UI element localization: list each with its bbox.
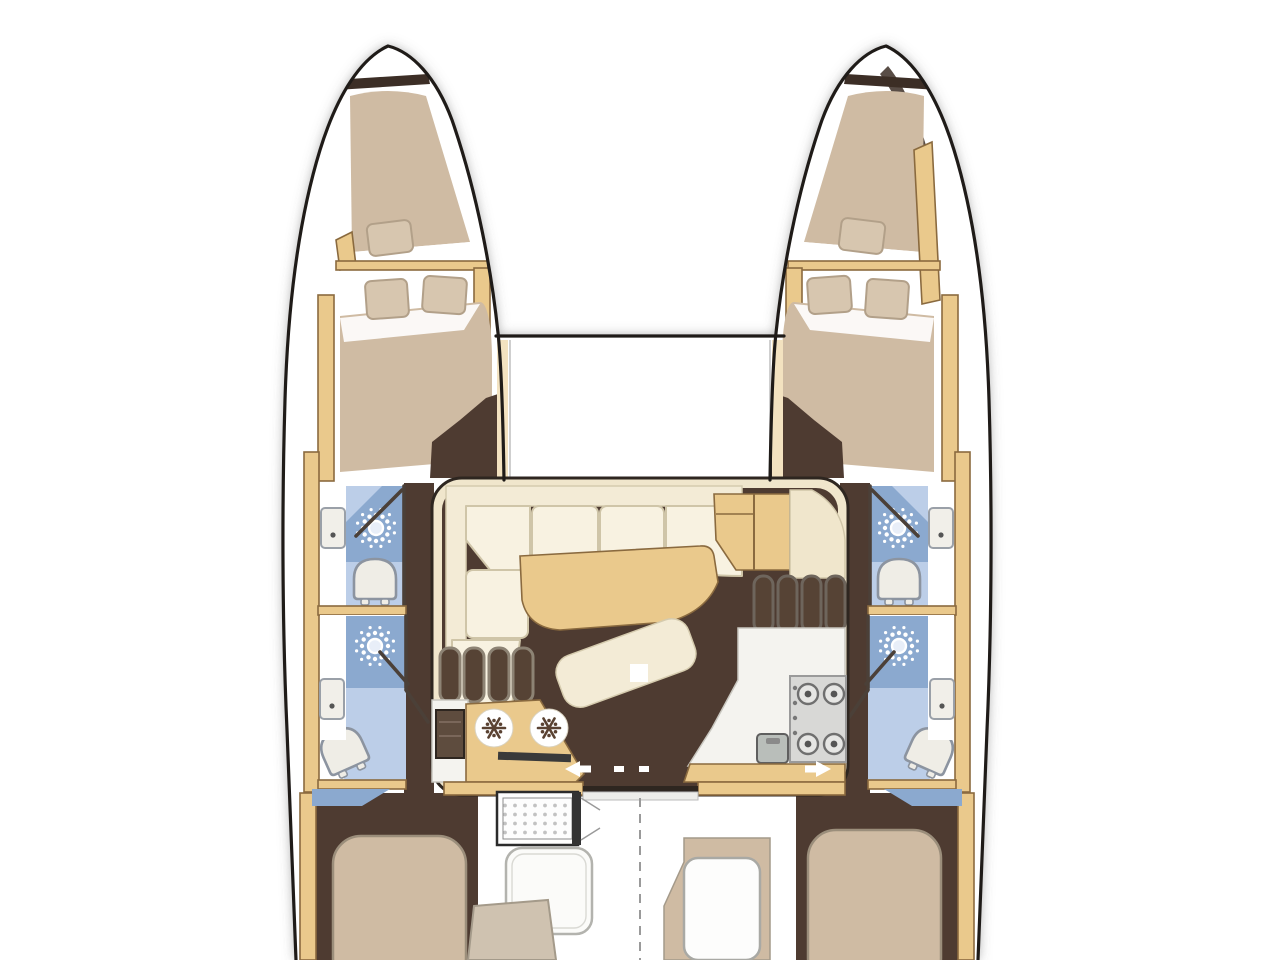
right-aft-bulkhead [868, 780, 956, 789]
nav-seat [714, 490, 845, 578]
sink-icon [930, 679, 954, 719]
right-forepeak-bulkhead [788, 261, 940, 270]
floor-plan-canvas [0, 0, 1280, 960]
right-forward-pillow-1 [865, 279, 910, 320]
left-heads-divider [318, 606, 406, 615]
right-side-wood-strip [955, 452, 970, 792]
burner-icon [798, 684, 818, 704]
table-folding-leaf [572, 792, 581, 845]
cockpit-seat-cushion [468, 900, 556, 960]
left-cabin-wood-outer [318, 295, 334, 481]
left-side-wood-strip [304, 452, 319, 792]
table-leg [630, 664, 648, 682]
sliding-door-track [583, 786, 698, 792]
sofa-cushion [466, 570, 528, 638]
arrow-dash [614, 766, 624, 772]
left-forepeak-pillow [366, 219, 414, 256]
left-aft-bulkhead [318, 780, 406, 789]
sink-icon [320, 679, 344, 719]
sink-icon [321, 508, 345, 548]
salon [432, 478, 848, 800]
right-forepeak-pillow [838, 217, 886, 254]
left-forepeak-bulkhead [336, 261, 488, 270]
left-aft-island-berth [333, 836, 466, 960]
left-forward-pillow-2 [422, 276, 467, 315]
burner-icon [824, 734, 844, 754]
burner-icon [798, 734, 818, 754]
cabinet-front [436, 710, 464, 758]
right-aft-wood-strip [958, 793, 974, 960]
door-sill-wood-right [698, 782, 845, 795]
aft-seat-white-top [684, 858, 760, 960]
catamaran-floor-plan [0, 0, 1280, 960]
left-corridor-floor [404, 483, 434, 795]
right-heads-divider [868, 606, 956, 615]
toilet-icon [354, 559, 396, 605]
left-bathroom-forward [320, 483, 404, 608]
left-forward-pillow-1 [365, 279, 410, 320]
toilet-icon [878, 559, 920, 605]
right-bathroom-forward [870, 483, 954, 608]
sink-icon [929, 508, 953, 548]
right-forward-pillow-2 [807, 276, 852, 315]
right-aft-island-berth [808, 830, 941, 960]
arrow-dash [639, 766, 649, 772]
faucet [766, 738, 780, 744]
burner-icon [824, 684, 844, 704]
left-aft-wood-strip [300, 793, 316, 960]
